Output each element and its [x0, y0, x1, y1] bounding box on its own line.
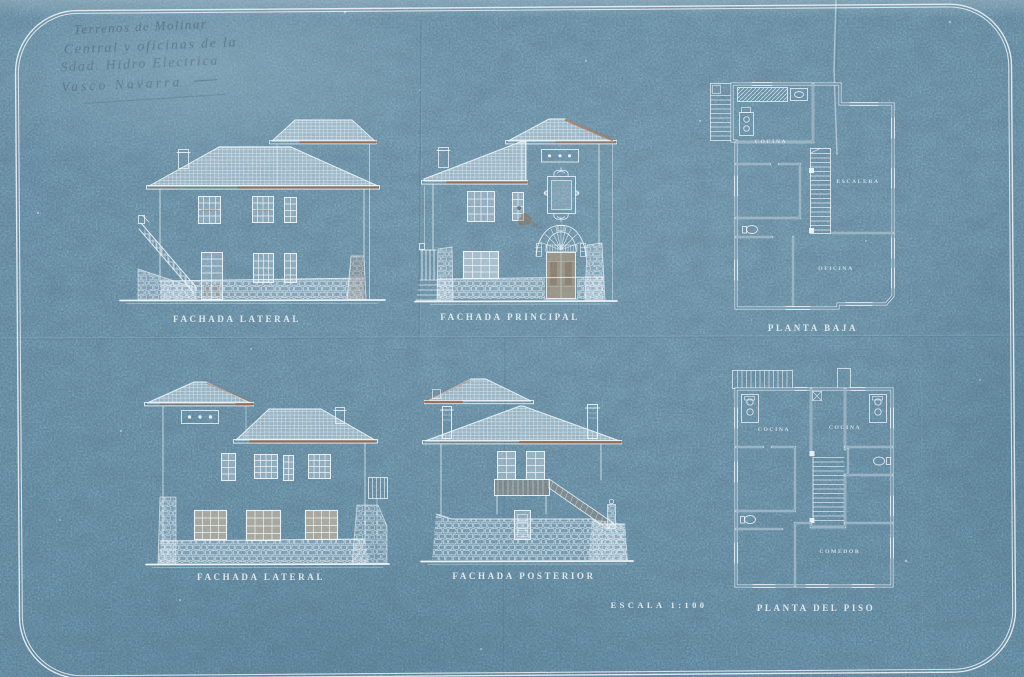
svg-text:COMEDOR: COMEDOR	[819, 549, 860, 555]
svg-text:FACHADA LATERAL: FACHADA LATERAL	[197, 572, 325, 582]
svg-text:COCINA: COCINA	[758, 427, 790, 433]
svg-text:FACHADA PRINCIPAL: FACHADA PRINCIPAL	[440, 312, 580, 322]
svg-text:ESCALERA: ESCALERA	[836, 179, 879, 185]
svg-text:ESCALA 1:100: ESCALA 1:100	[611, 600, 708, 610]
svg-text:COCINA: COCINA	[755, 139, 787, 145]
svg-text:COCINA: COCINA	[829, 425, 861, 431]
svg-text:PLANTA BAJA: PLANTA BAJA	[768, 323, 858, 333]
svg-text:FACHADA LATERAL: FACHADA LATERAL	[173, 314, 301, 324]
svg-text:PLANTA DEL PISO: PLANTA DEL PISO	[757, 603, 875, 613]
svg-text:FACHADA POSTERIOR: FACHADA POSTERIOR	[452, 571, 595, 581]
svg-text:OFICINA: OFICINA	[818, 266, 853, 272]
